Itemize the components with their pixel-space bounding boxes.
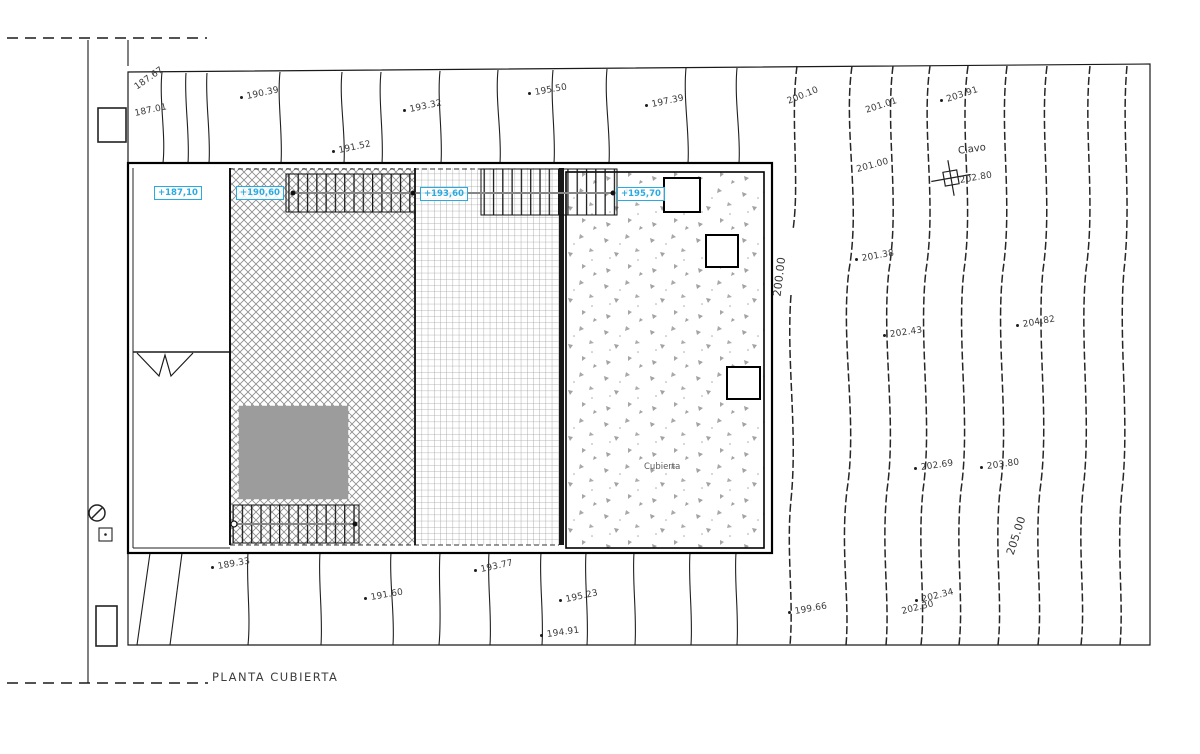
spot-elevation-dot bbox=[540, 634, 543, 637]
spot-elevation-dot bbox=[559, 599, 562, 602]
spot-elevation-label: 194.91 bbox=[546, 626, 580, 639]
spot-elevation-dot bbox=[788, 611, 791, 614]
spot-elevation-label: 203.80 bbox=[986, 458, 1020, 471]
spot-elevation-dot bbox=[980, 466, 983, 469]
spot-elevation-label: 201.00 bbox=[856, 158, 890, 175]
roof-elevation-tag: +195,70 bbox=[617, 187, 665, 201]
spot-elevation-label: 193.32 bbox=[409, 99, 443, 115]
spot-elevation-label: 197.39 bbox=[651, 94, 685, 110]
spot-elevation-label: 195.50 bbox=[534, 83, 568, 98]
spot-elevation-dot bbox=[1016, 324, 1019, 327]
roof-plan-drawing: 187.67187.01190.39191.52193.32195.50197.… bbox=[0, 0, 1200, 754]
spot-elevation-label: 191.52 bbox=[338, 140, 372, 156]
roof-elevation-tag: +193,60 bbox=[420, 187, 468, 201]
spot-elevation-label: 190.39 bbox=[246, 86, 280, 102]
spot-elevation-label: 205.00 bbox=[1005, 515, 1028, 556]
spot-elevation-dot bbox=[914, 467, 917, 470]
spot-elevation-dot bbox=[528, 92, 531, 95]
spot-elevation-label: 203.91 bbox=[946, 86, 980, 105]
spot-elevation-dot bbox=[474, 569, 477, 572]
spot-elevation-dot bbox=[645, 104, 648, 107]
spot-elevation-label: 187.01 bbox=[134, 103, 168, 119]
spot-elevation-dot bbox=[855, 258, 858, 261]
labels-layer: 187.67187.01190.39191.52193.32195.50197.… bbox=[0, 0, 1200, 754]
cubierta-area-label: Cubierta bbox=[644, 462, 680, 472]
spot-elevation-label: 199.66 bbox=[794, 602, 828, 617]
spot-elevation-dot bbox=[403, 109, 406, 112]
spot-elevation-label: 201.01 bbox=[865, 97, 899, 116]
spot-elevation-dot bbox=[240, 96, 243, 99]
spot-elevation-dot bbox=[211, 566, 214, 569]
spot-elevation-label: 202.43 bbox=[889, 326, 923, 339]
roof-elevation-tag: +187,10 bbox=[154, 186, 202, 200]
spot-elevation-label: 202.69 bbox=[920, 459, 954, 472]
spot-elevation-label: 195.23 bbox=[565, 589, 599, 605]
spot-elevation-label: 201.38 bbox=[861, 249, 895, 264]
spot-elevation-label: 202.80 bbox=[959, 171, 993, 186]
spot-elevation-label: 189.33 bbox=[217, 557, 251, 572]
spot-elevation-label: 202.34 bbox=[921, 588, 955, 605]
spot-elevation-dot bbox=[883, 334, 886, 337]
spot-elevation-dot bbox=[940, 99, 943, 102]
drawing-title: PLANTA CUBIERTA bbox=[212, 670, 338, 684]
spot-elevation-label: 200.00 bbox=[772, 256, 788, 297]
spot-elevation-dot bbox=[332, 150, 335, 153]
spot-elevation-label: 187.67 bbox=[133, 66, 165, 92]
spot-elevation-label: 191.60 bbox=[370, 588, 404, 603]
spot-elevation-label: 200.10 bbox=[786, 86, 820, 107]
spot-elevation-label: 204.82 bbox=[1022, 315, 1056, 330]
spot-elevation-dot bbox=[915, 599, 918, 602]
spot-elevation-dot bbox=[364, 597, 367, 600]
spot-elevation-label: 193.77 bbox=[480, 559, 514, 575]
roof-elevation-tag: +190,60 bbox=[236, 186, 284, 200]
